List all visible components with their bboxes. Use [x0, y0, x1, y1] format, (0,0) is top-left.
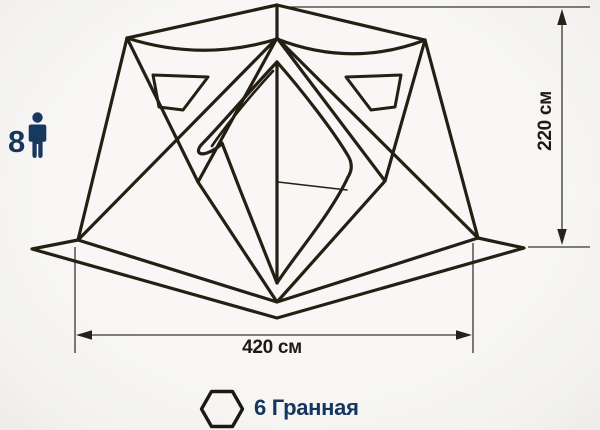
tent-brace-right-short [385, 40, 425, 181]
arrow-right-icon [456, 330, 472, 340]
door-vent-line [278, 182, 347, 190]
tent-drawing-lines [32, 5, 524, 318]
person-icon [29, 112, 47, 158]
arrow-up-icon [557, 9, 567, 25]
capacity-count: 8 [8, 124, 25, 160]
height-dimension-label: 220 см [535, 91, 557, 151]
tent-brace-right-long [277, 38, 478, 238]
tent-roof-left-edge [127, 5, 277, 38]
tent-dimension-drawing [0, 0, 600, 430]
diagram-canvas: 8 220 см 420 см 6 Гранная [0, 0, 600, 430]
arrow-left-icon [76, 330, 92, 340]
hexagon-icon [202, 392, 243, 427]
tent-brace-left-short [127, 38, 198, 182]
tent-left-edge [78, 38, 127, 240]
tent-rim-right [277, 39, 425, 54]
arrow-down-icon [557, 229, 567, 245]
tent-right-edge [425, 40, 478, 238]
width-dimension-label: 420 см [242, 337, 302, 359]
tent-roof-right-edge [277, 5, 425, 40]
door-flap-hook [212, 71, 273, 146]
window-right [346, 75, 401, 110]
height-dimension-line [557, 9, 567, 245]
shape-name-label: 6 Гранная [254, 395, 359, 421]
tent-rim-left [127, 38, 277, 50]
